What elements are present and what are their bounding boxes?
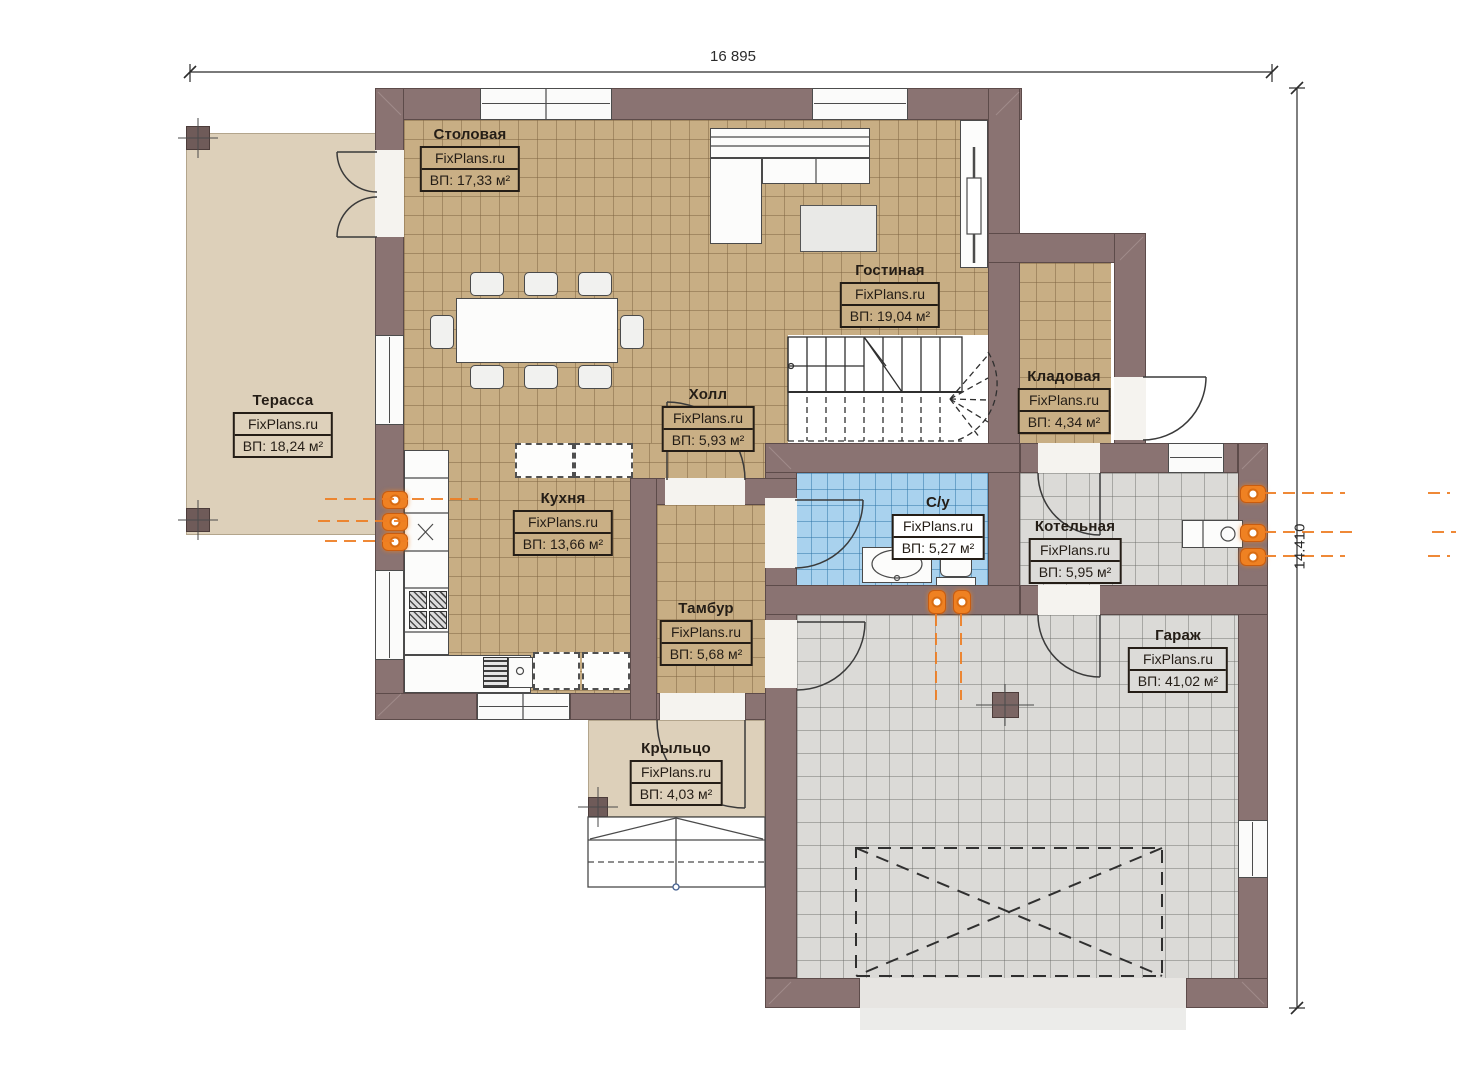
room-watermark: FixPlans.ru [894, 516, 983, 536]
room-name: Гостиная [840, 262, 940, 279]
hall-vestibule-door-opening [665, 478, 745, 505]
radiator-icon [1240, 485, 1266, 503]
stove-burner [429, 591, 447, 609]
room-watermark: FixPlans.ru [632, 762, 721, 782]
storage-exterior-door-opening [1114, 377, 1146, 440]
dining-chair [578, 272, 612, 296]
dining-chair [524, 365, 558, 389]
room-area: ВП: 4,03 м² [632, 782, 721, 804]
room-name: Терасса [233, 392, 333, 409]
sofa-seat [762, 158, 870, 184]
room-name: Гараж [1128, 627, 1228, 644]
floor-plan: 16 895 14.410 Терасса FixPlans.ruВП: 18,… [0, 0, 1473, 1080]
room-watermark: FixPlans.ru [1130, 649, 1226, 669]
dining-chair [620, 315, 644, 349]
window-garage-right [1238, 820, 1268, 878]
radiator-icon [1240, 548, 1266, 566]
room-area: ВП: 5,68 м² [662, 642, 751, 664]
radiator-icon [382, 491, 408, 509]
room-area: ВП: 18,24 м² [235, 434, 331, 456]
dining-chair [430, 315, 454, 349]
radiator-icon [953, 590, 971, 614]
room-area: ВП: 5,27 м² [894, 536, 983, 558]
wall-living-right [988, 88, 1020, 615]
garage-column [992, 692, 1019, 718]
room-area: ВП: 13,66 м² [515, 532, 611, 554]
room-name: С/у [892, 494, 985, 511]
room-label-garage: Гараж FixPlans.ruВП: 41,02 м² [1128, 627, 1228, 693]
terrace-door-opening [375, 150, 404, 237]
room-label-boiler: Котельная FixPlans.ruВП: 5,95 м² [1029, 518, 1122, 584]
dining-chair [578, 365, 612, 389]
room-watermark: FixPlans.ru [515, 512, 611, 532]
wall-garage-bottom-a [765, 978, 860, 1008]
room-area: ВП: 4,34 м² [1020, 410, 1109, 432]
wall-bath-top [765, 443, 1020, 473]
room-area: ВП: 5,95 м² [1031, 560, 1120, 582]
coffee-table [800, 205, 877, 252]
room-name: Холл [662, 386, 755, 403]
room-label-terrace: Терасса FixPlans.ruВП: 18,24 м² [233, 392, 333, 458]
sofa-chaise [710, 158, 762, 244]
dining-chair [524, 272, 558, 296]
room-watermark: FixPlans.ru [1031, 540, 1120, 560]
room-label-porch: Крыльцо FixPlans.ruВП: 4,03 м² [630, 740, 723, 806]
room-area: ВП: 5,93 м² [664, 428, 753, 450]
porch-steps [588, 817, 765, 890]
radiator-icon [382, 533, 408, 551]
room-name: Котельная [1029, 518, 1122, 535]
room-label-hall: Холл FixPlans.ruВП: 5,93 м² [662, 386, 755, 452]
garage-vestibule-door-opening [765, 620, 797, 688]
storage-boiler-door-opening [1038, 443, 1100, 473]
window-dining-left [375, 335, 404, 425]
room-watermark: FixPlans.ru [664, 408, 753, 428]
room-label-kitchen: Кухня FixPlans.ruВП: 13,66 м² [513, 490, 613, 556]
room-label-living: Гостиная FixPlans.ruВП: 19,04 м² [840, 262, 940, 328]
room-area: ВП: 17,33 м² [422, 168, 518, 190]
wall-top [375, 88, 1022, 120]
tv-cabinet [960, 120, 988, 268]
wall-bath-bottom [765, 585, 1020, 615]
porch-post [588, 797, 608, 817]
room-name: Кладовая [1018, 368, 1111, 385]
kitchen-cabinet-dashed [574, 443, 633, 478]
wall-garage-bottom-b [1186, 978, 1268, 1008]
room-name: Тамбур [660, 600, 753, 617]
dining-table [456, 298, 618, 363]
garage-boiler-door-opening [1038, 585, 1100, 615]
garage-gate-apron [860, 1008, 1186, 1030]
room-label-bathroom: С/у FixPlans.ruВП: 5,27 м² [892, 494, 985, 560]
bathroom-door-opening [765, 498, 797, 568]
kitchen-sink-unit [508, 657, 533, 688]
stove-burner [409, 611, 427, 629]
room-name: Столовая [420, 126, 520, 143]
terrace-post [186, 508, 210, 532]
radiator-icon [382, 513, 408, 531]
room-watermark: FixPlans.ru [235, 414, 331, 434]
window-kitchen-bottom [477, 693, 570, 720]
window-living-top [812, 88, 908, 120]
dimension-top-label: 16 895 [688, 48, 778, 65]
room-name: Крыльцо [630, 740, 723, 757]
dining-chair [470, 272, 504, 296]
toilet-tank [936, 577, 976, 586]
room-label-dining: Столовая FixPlans.ruВП: 17,33 м² [420, 126, 520, 192]
window-boiler-top [1168, 443, 1224, 473]
kitchen-cabinet-dashed [582, 652, 630, 690]
room-watermark: FixPlans.ru [842, 284, 938, 304]
garage-gate-opening [860, 978, 1186, 1008]
wall-bottom-kitchen-a [375, 693, 477, 720]
kitchen-cabinet-dashed [533, 652, 580, 690]
stove-burner [409, 591, 427, 609]
room-watermark: FixPlans.ru [422, 148, 518, 168]
window-kitchen-left [375, 570, 404, 660]
boiler-unit [1182, 520, 1243, 548]
room-label-storage: Кладовая FixPlans.ruВП: 4,34 м² [1018, 368, 1111, 434]
stove-burner [429, 611, 447, 629]
room-name: Кухня [513, 490, 613, 507]
front-door-opening [660, 693, 745, 720]
terrace-post [186, 126, 210, 150]
sofa-back [710, 128, 870, 158]
room-label-vestibule: Тамбур FixPlans.ruВП: 5,68 м² [660, 600, 753, 666]
terrace-floor [186, 133, 376, 535]
wall-kitchen-vestibule [630, 478, 657, 720]
radiator-icon [928, 590, 946, 614]
dishwasher [483, 657, 508, 688]
room-area: ВП: 41,02 м² [1130, 669, 1226, 691]
radiator-icon [1240, 524, 1266, 542]
dimension-right-label: 14.410 [1292, 505, 1309, 589]
room-watermark: FixPlans.ru [662, 622, 751, 642]
stairs-area [788, 335, 988, 443]
dining-chair [470, 365, 504, 389]
room-area: ВП: 19,04 м² [842, 304, 938, 326]
window-dining-top [480, 88, 612, 120]
room-watermark: FixPlans.ru [1020, 390, 1109, 410]
kitchen-cabinet-dashed [515, 443, 574, 478]
